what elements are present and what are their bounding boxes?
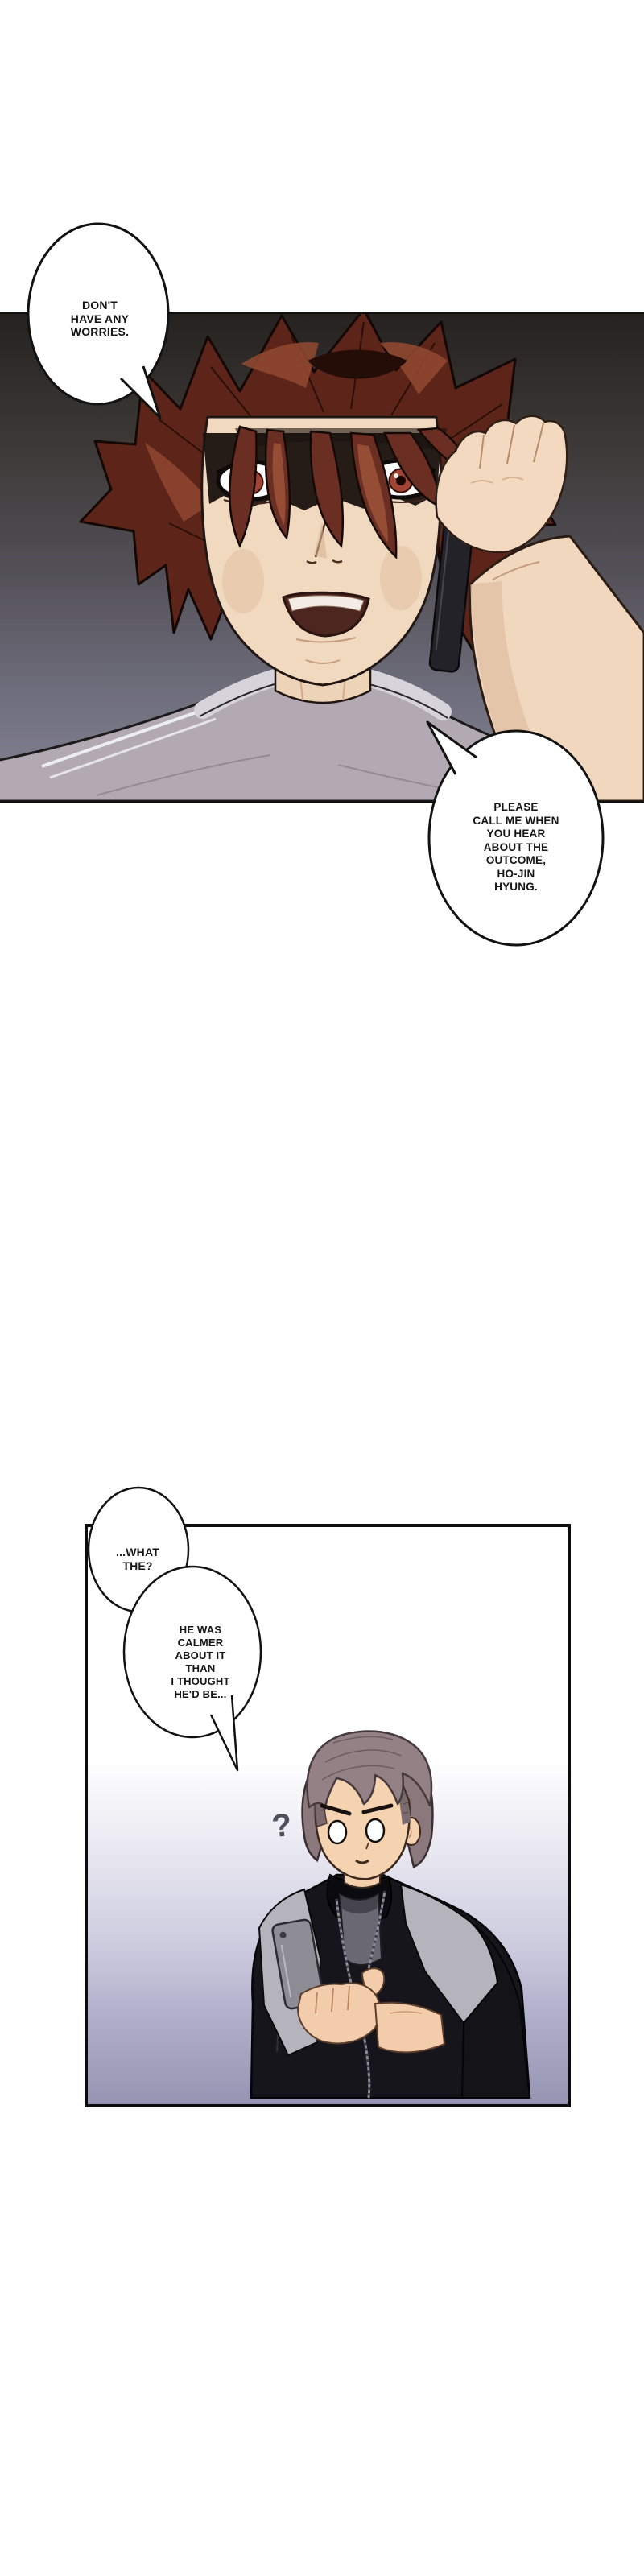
head <box>303 1732 433 1880</box>
question-mark-effect: ? <box>260 1802 303 1851</box>
blank-eye-left <box>328 1821 346 1843</box>
blank-eye-right <box>366 1819 384 1842</box>
bubble-text-what-the: ...WHAT THE? <box>89 1537 186 1582</box>
bubble-text-dont-worry: DON'T HAVE ANY WORRIES. <box>38 282 162 356</box>
bubble-text-calmer: HE WAS CALMER ABOUT IT THAN I THOUGHT HE… <box>138 1621 262 1703</box>
bubble-text-call-me: PLEASE CALL ME WHEN YOU HEAR ABOUT THE O… <box>445 799 587 896</box>
manga-page: ? DON'T HAVE ANY WORRIES. PLEASE CALL ME… <box>0 0 644 2576</box>
